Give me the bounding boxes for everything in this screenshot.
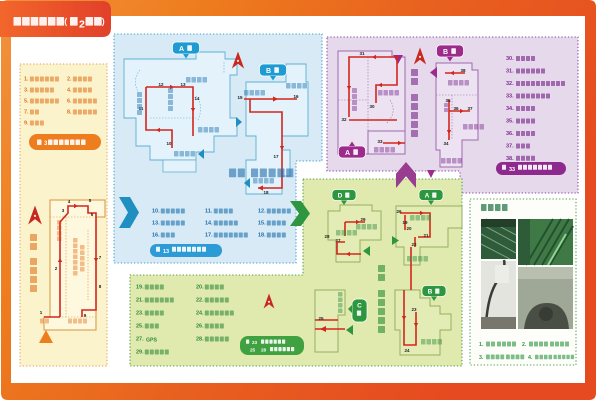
svg-text:34.: 34. [506,106,514,112]
svg-text:GPS: GPS [146,337,157,343]
svg-text:23: 23 [252,340,258,345]
svg-text:5.: 5. [24,99,29,105]
svg-text:28.: 28. [196,337,204,343]
svg-text:37: 37 [467,106,473,111]
svg-text:17: 17 [273,154,279,159]
svg-text:20: 20 [406,226,412,231]
svg-text:16: 16 [293,94,299,99]
svg-text:18: 18 [263,190,269,195]
svg-text:24: 24 [404,348,410,353]
svg-text:28: 28 [324,234,330,239]
svg-text:2.: 2. [67,77,72,83]
svg-text:C: C [357,303,362,310]
svg-text:38.: 38. [506,156,514,162]
svg-text:16.: 16. [152,233,160,239]
svg-text:35: 35 [445,98,451,103]
svg-text:32: 32 [341,117,347,122]
svg-text:31.: 31. [506,69,514,75]
svg-text:33: 33 [509,167,515,173]
svg-text:33: 33 [377,139,383,144]
svg-text:36.: 36. [506,131,514,137]
svg-text:25.: 25. [136,324,144,330]
svg-text:30.: 30. [506,56,514,62]
svg-text:21: 21 [423,233,429,238]
svg-text:31: 31 [359,51,365,56]
svg-text:17.: 17. [205,233,213,239]
svg-text:25: 25 [318,316,324,321]
svg-text:6.: 6. [67,99,72,105]
svg-text:3.: 3. [24,88,29,94]
svg-text:29: 29 [360,217,366,222]
svg-text:B: B [266,68,271,75]
svg-text:33.: 33. [506,94,514,100]
svg-text:4.: 4. [528,355,533,361]
svg-text:15: 15 [237,95,243,100]
svg-text:15.: 15. [258,221,266,227]
svg-text:12: 12 [158,82,164,87]
svg-text:22: 22 [411,242,417,247]
svg-text:10: 10 [166,141,172,146]
svg-text:37.: 37. [506,144,514,150]
svg-text:29.: 29. [136,350,144,356]
svg-text:B: B [428,289,433,296]
svg-text:13: 13 [180,82,186,87]
svg-text:38: 38 [460,68,466,73]
svg-text:13.: 13. [152,221,160,227]
svg-text:32.: 32. [506,81,514,87]
svg-text:3.: 3. [479,355,484,361]
svg-text:19.: 19. [136,285,144,291]
svg-text:9.: 9. [24,121,29,127]
svg-text:18.: 18. [258,233,266,239]
svg-text:2: 2 [79,19,85,31]
svg-text:12.: 12. [258,209,266,215]
svg-text:14: 14 [194,96,200,101]
svg-text:19: 19 [402,220,408,225]
svg-text:21.: 21. [136,298,144,304]
svg-text:D: D [338,193,343,200]
svg-text:1.: 1. [24,77,29,83]
svg-text:8.: 8. [67,110,72,116]
svg-text:27.: 27. [136,337,144,343]
svg-text:1.: 1. [479,342,484,348]
svg-text:22.: 22. [196,298,204,304]
svg-text:4.: 4. [67,88,72,94]
svg-text:34: 34 [443,141,449,146]
svg-text:28: 28 [261,348,267,353]
svg-text:30: 30 [369,104,375,109]
svg-text:25: 25 [250,348,256,353]
svg-text:23.: 23. [136,311,144,317]
svg-text:2.: 2. [522,342,527,348]
svg-text:B: B [443,49,448,56]
svg-text:13: 13 [163,249,169,255]
svg-text:14.: 14. [205,221,213,227]
svg-text:36: 36 [453,106,459,111]
svg-text:10.: 10. [152,209,160,215]
svg-text:11.: 11. [205,209,213,215]
svg-text:7.: 7. [24,110,29,116]
svg-text:A: A [179,46,184,53]
svg-text:20.: 20. [196,285,204,291]
svg-text:A: A [345,150,350,157]
svg-text:23: 23 [411,307,417,312]
svg-text:24.: 24. [196,311,204,317]
svg-text:27: 27 [335,238,341,243]
svg-text:26.: 26. [196,324,204,330]
svg-text:35.: 35. [506,119,514,125]
svg-text:26: 26 [396,209,402,214]
svg-text:A: A [425,193,430,200]
